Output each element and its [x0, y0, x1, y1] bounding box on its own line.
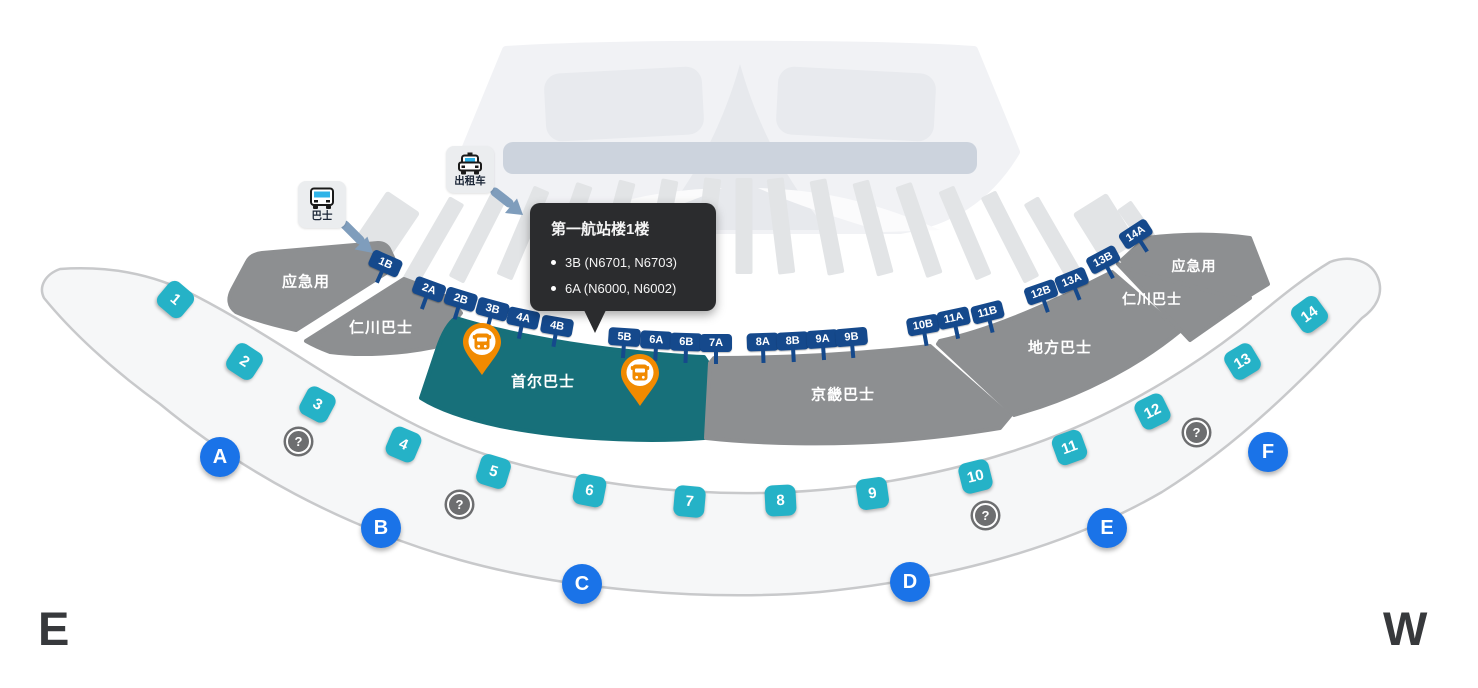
bullet-icon [551, 286, 556, 291]
bus-chip-label: 巴士 [312, 211, 333, 222]
help-point-icon[interactable]: ? [1184, 420, 1209, 445]
bullet-icon [551, 260, 556, 265]
bus-glyph-icon [631, 365, 649, 381]
stop-flag-8A[interactable]: 8A [746, 332, 779, 363]
stop-flag-4B[interactable]: 4B [538, 314, 575, 349]
zone-label-emergency-left: 应急用 [282, 271, 330, 292]
stop-flag-4A[interactable]: 4A [503, 306, 541, 342]
tooltip-item: 6A (N6000, N6002) [551, 275, 702, 301]
gate-A[interactable]: A [200, 437, 240, 477]
platform-9[interactable]: 9 [855, 476, 890, 511]
platform-7[interactable]: 7 [673, 485, 707, 519]
tooltip-item: 3B (N6701, N6703) [551, 249, 702, 275]
compass-west: W [1383, 605, 1427, 652]
bus-chip[interactable]: 巴士 [298, 181, 346, 228]
compass-east: E [38, 605, 69, 652]
zone-label-gyeonggi-bus: 京畿巴士 [811, 384, 875, 405]
zone-label-incheon-bus-right: 仁川巴士 [1122, 289, 1182, 309]
tooltip-title: 第一航站楼1楼 [551, 218, 702, 239]
bus-icon [308, 187, 336, 210]
taxi-chip[interactable]: 出租车 [446, 146, 494, 193]
stop-flag-8B[interactable]: 8B [776, 331, 810, 363]
stop-flag-6B[interactable]: 6B [669, 332, 702, 363]
map-graphics [0, 0, 1478, 688]
platform-6[interactable]: 6 [571, 472, 607, 508]
gate-E[interactable]: E [1087, 508, 1127, 548]
taxi-chip-label: 出租车 [454, 176, 486, 187]
stop-flag-7A[interactable]: 7A [700, 334, 732, 364]
tooltip-pointer [583, 308, 607, 333]
platform-8[interactable]: 8 [764, 484, 797, 517]
bus-location-pin-3b[interactable] [460, 320, 504, 378]
gate-B[interactable]: B [361, 508, 401, 548]
zone-label-seoul-bus: 首尔巴士 [511, 371, 575, 392]
bus-glyph-icon [473, 334, 491, 350]
stop-info-tooltip: 第一航站楼1楼 3B (N6701, N6703) 6A (N6000, N60… [530, 203, 716, 311]
help-point-icon[interactable]: ? [447, 492, 472, 517]
help-point-icon[interactable]: ? [973, 503, 998, 528]
gate-F[interactable]: F [1248, 432, 1288, 472]
zone-label-emergency-right: 应急用 [1172, 256, 1217, 276]
gate-D[interactable]: D [890, 562, 930, 602]
airport-terminal-map: 应急用 仁川巴士 首尔巴士 京畿巴士 地方巴士 仁川巴士 应急用 巴士 出租车 [0, 0, 1478, 688]
taxi-icon [456, 152, 484, 175]
help-point-icon[interactable]: ? [286, 429, 311, 454]
stop-flag-9B[interactable]: 9B [835, 327, 869, 360]
zone-label-local-bus: 地方巴士 [1028, 337, 1092, 358]
gate-C[interactable]: C [562, 564, 602, 604]
zone-label-incheon-bus-left: 仁川巴士 [349, 317, 413, 338]
bus-location-pin-6a[interactable] [618, 351, 662, 409]
